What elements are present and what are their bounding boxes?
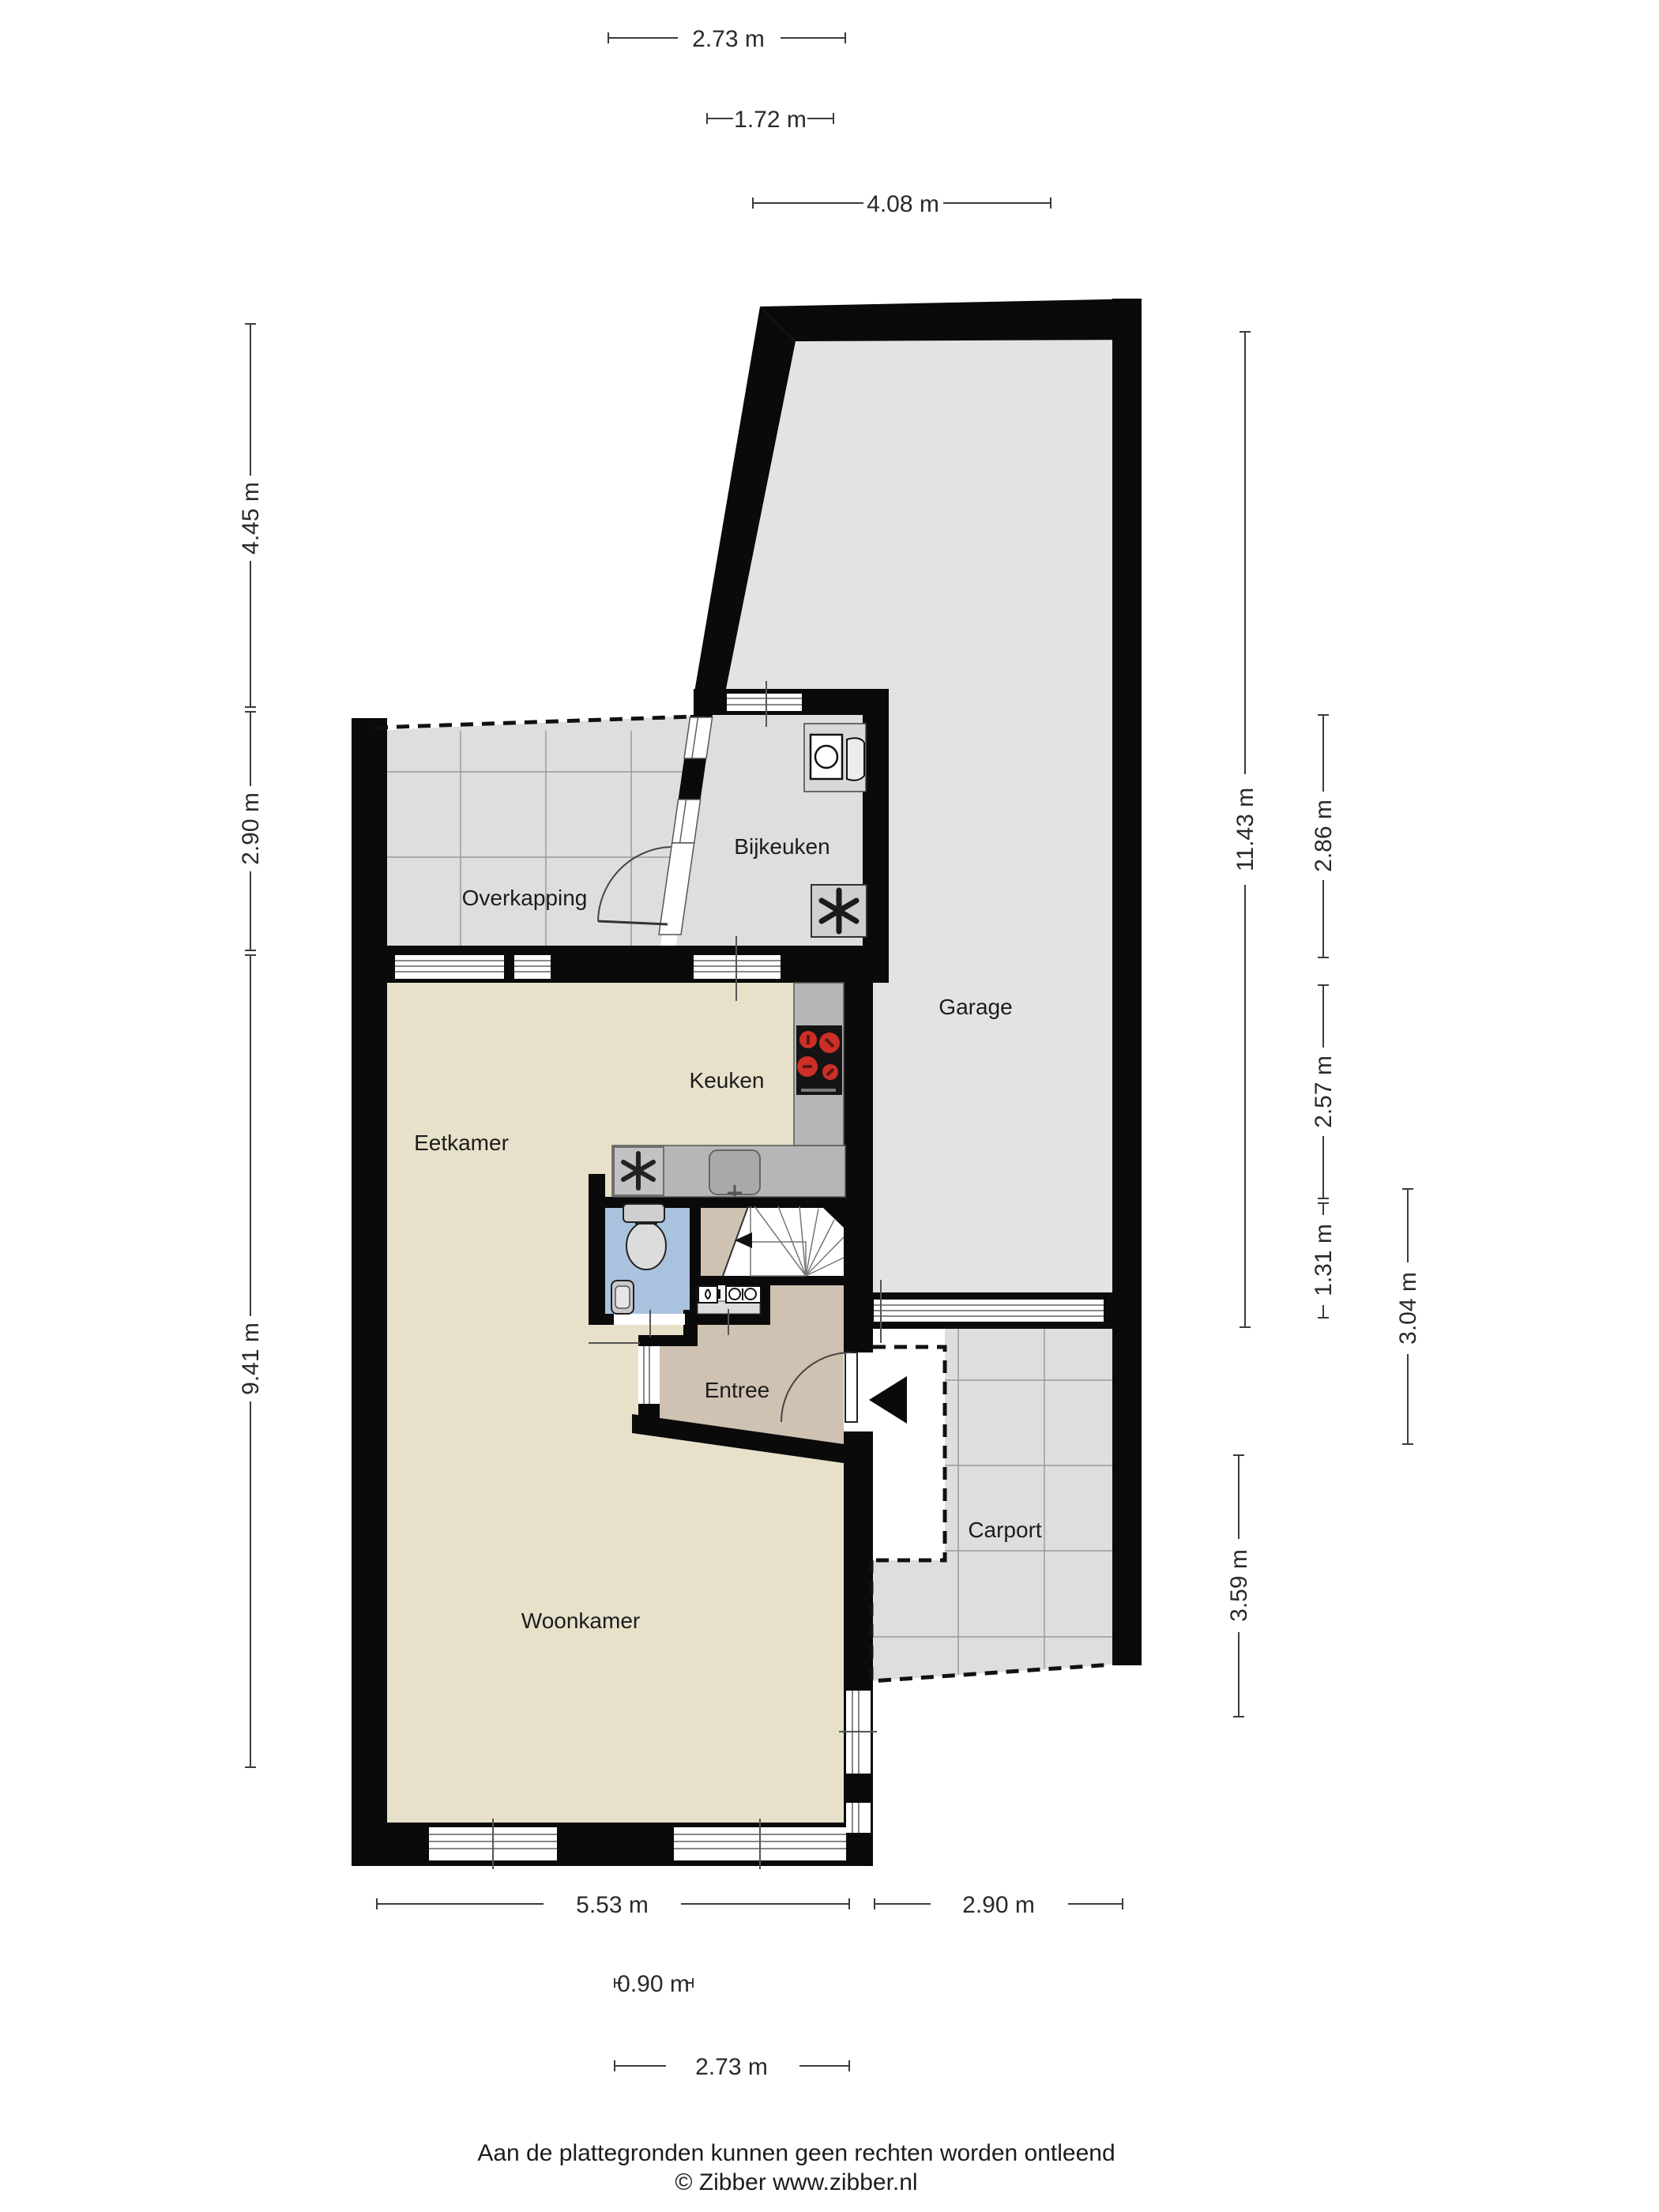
dim-label: 2.90 m xyxy=(962,1892,1035,1918)
carport-walkway-edge xyxy=(871,1347,945,1560)
dim-label: 4.08 m xyxy=(867,191,939,217)
dim-bottom-273: 2.73 m xyxy=(615,2054,849,2080)
toilet-left-wall xyxy=(589,1174,605,1315)
dim-top-408: 4.08 m xyxy=(753,191,1051,217)
garage-top-wall xyxy=(760,299,1141,341)
stove-icon xyxy=(796,1025,842,1095)
dim-label: 2.86 m xyxy=(1311,799,1337,872)
dim-label: 3.59 m xyxy=(1226,1549,1252,1622)
dim-label: 3.04 m xyxy=(1395,1272,1421,1345)
window-woonkamer-side-lower xyxy=(846,1803,871,1833)
dim-right-359: 3.59 m xyxy=(1226,1455,1252,1717)
dim-label: 2.57 m xyxy=(1311,1055,1337,1128)
floorplan-page: Overkapping Bijkeuken Garage Keuken Eetk… xyxy=(0,0,1659,2212)
dim-label: 11.43 m xyxy=(1232,788,1258,871)
window-eetkamer-top xyxy=(395,955,551,979)
dim-label: 1.31 m xyxy=(1311,1224,1337,1296)
toilet-door-jamb-left xyxy=(589,1314,614,1325)
carport-right-wall xyxy=(1112,1329,1142,1665)
dim-right-286: 2.86 m xyxy=(1311,715,1337,957)
dim-right-304: 3.04 m xyxy=(1395,1189,1421,1444)
dim-bottom-553: 5.53 m xyxy=(377,1892,849,1918)
dim-label: 2.73 m xyxy=(695,2054,768,2080)
room-label-woonkamer: Woonkamer xyxy=(521,1608,640,1633)
dim-right-257: 2.57 m xyxy=(1311,985,1337,1198)
footer: Aan de plattegronden kunnen geen rechten… xyxy=(477,2140,1115,2195)
dim-label: 1.72 m xyxy=(734,107,807,133)
front-door-leaf xyxy=(845,1352,857,1422)
footer-credit: © Zibber www.zibber.nl xyxy=(675,2169,917,2195)
room-label-keuken: Keuken xyxy=(690,1068,765,1093)
fan-icon xyxy=(614,1147,664,1195)
washing-machine-icon xyxy=(804,724,866,792)
dim-top-273: 2.73 m xyxy=(608,26,845,52)
sink-icon xyxy=(709,1150,760,1196)
meter-closet xyxy=(695,1286,761,1303)
entrance-arrow-icon xyxy=(869,1376,907,1424)
dim-label: 2.90 m xyxy=(238,792,264,865)
dim-label: 2.73 m xyxy=(692,26,765,52)
room-label-garage: Garage xyxy=(939,995,1012,1019)
room-label-overkapping: Overkapping xyxy=(462,886,588,910)
dim-bottom-290: 2.90 m xyxy=(875,1892,1123,1918)
dim-top-172: 1.72 m xyxy=(707,107,833,133)
footer-disclaimer: Aan de plattegronden kunnen geen rechten… xyxy=(477,2140,1115,2166)
room-label-bijkeuken: Bijkeuken xyxy=(734,834,829,859)
stairs-bottom-wall xyxy=(698,1276,844,1285)
room-label-eetkamer: Eetkamer xyxy=(414,1130,509,1155)
carport-floor xyxy=(871,1329,1112,1681)
garage-right-wall xyxy=(1112,299,1142,1329)
room-label-entree: Entree xyxy=(705,1378,770,1402)
entree-wall-jog xyxy=(638,1335,683,1346)
room-label-carport: Carport xyxy=(968,1518,1042,1542)
dim-label: 5.53 m xyxy=(576,1892,649,1918)
dim-right-1143: 11.43 m xyxy=(1232,332,1258,1327)
dim-right-131: 1.31 m xyxy=(1311,1203,1337,1318)
fan-icon xyxy=(811,885,867,937)
electric-panel-icon xyxy=(726,1286,761,1303)
left-wall xyxy=(352,718,387,1866)
toilet-icon xyxy=(623,1204,666,1270)
dim-left-445: 4.45 m xyxy=(238,324,264,707)
overkapping-floor xyxy=(375,716,692,946)
dim-label: 9.41 m xyxy=(238,1322,264,1395)
dim-left-941: 9.41 m xyxy=(238,955,264,1767)
floorplan-canvas: Overkapping Bijkeuken Garage Keuken Eetk… xyxy=(0,0,1659,2212)
dim-left-290: 2.90 m xyxy=(238,712,264,950)
dim-label: 4.45 m xyxy=(238,482,264,555)
dim-label: 0.90 m xyxy=(617,1971,690,1997)
entree-left-wall xyxy=(683,1310,698,1346)
water-connection-icon xyxy=(695,1286,720,1303)
dim-bottom-090: 0.90 m xyxy=(615,1971,693,1997)
hand-basin-icon xyxy=(611,1281,634,1314)
